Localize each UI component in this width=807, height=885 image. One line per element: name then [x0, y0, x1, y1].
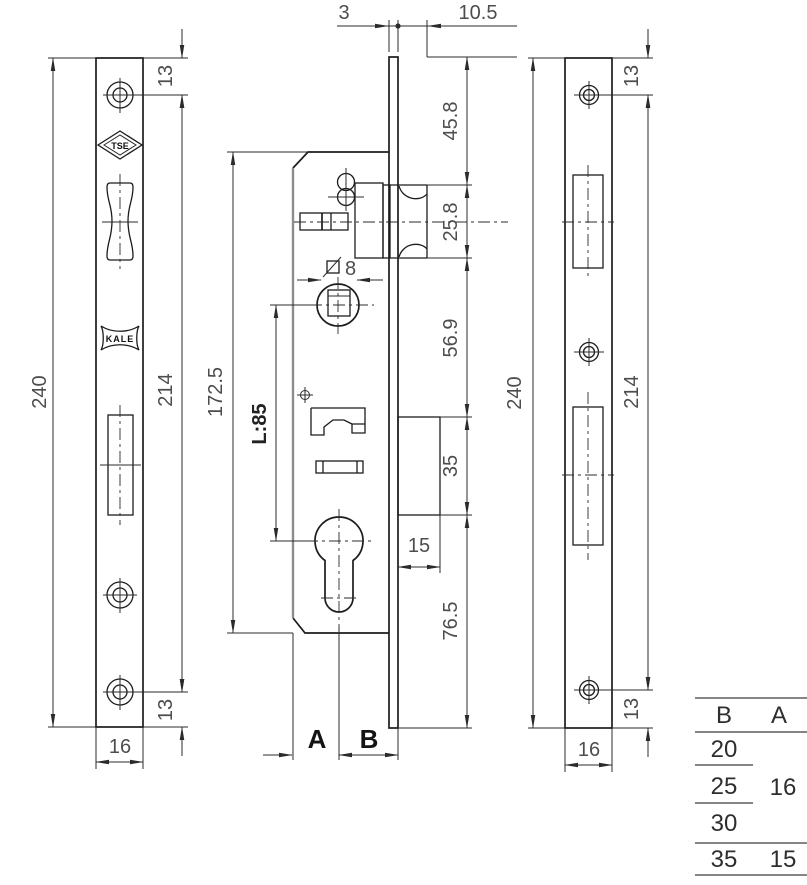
- kale-logo-text: KALE: [106, 334, 135, 344]
- left-screw-hole-bottom: [103, 675, 137, 710]
- dim-left-overall-height: 240: [29, 375, 51, 408]
- spindle-follower: 8: [297, 257, 383, 334]
- dim-right-width: 16: [578, 739, 600, 761]
- table-b-row-1: 20: [711, 736, 738, 763]
- back-plate-view: 240 13 214 13 16: [504, 29, 653, 772]
- top-dimensions: 3 10.5: [337, 2, 517, 57]
- drawing-canvas: TSE KALE 240 13 214: [0, 0, 807, 885]
- lock-technical-drawing: TSE KALE 240 13 214: [0, 0, 807, 885]
- dim-axis-distance: L:85: [249, 403, 271, 444]
- dim-chain-6: 76.5: [440, 602, 462, 641]
- faceplate-front-view: TSE KALE 240 13 214: [29, 29, 188, 769]
- latch-pin: [294, 213, 508, 230]
- kale-logo: KALE: [101, 326, 139, 350]
- label-a: A: [308, 724, 327, 754]
- dim-chain-3: 56.9: [440, 319, 462, 358]
- size-table: B A 20 25 30 35 16 15: [695, 698, 807, 875]
- left-screw-hole-middle: [103, 578, 137, 613]
- axis-distance-dimension: L:85: [249, 305, 314, 541]
- dim-right-screw-top: 13: [621, 65, 643, 87]
- left-deadbolt-cutout: [100, 405, 141, 525]
- dim-chain-5: 15: [408, 535, 430, 557]
- left-view-dimensions: 240 13 214 13 16: [29, 29, 188, 769]
- dim-faceplate-thickness: 3: [338, 2, 349, 24]
- dim-left-screw-span: 214: [155, 373, 177, 406]
- right-view-dimensions: 240 13 214 13 16: [504, 29, 653, 772]
- table-a-bottom: 15: [770, 846, 797, 873]
- dim-body-height: 172.5: [205, 367, 227, 417]
- chain-dimensions: 45.8 25.8 56.9 35 76.5 15: [398, 57, 517, 728]
- right-screw-hole-middle: [574, 338, 604, 366]
- dim-right-overall-height: 240: [504, 376, 526, 409]
- left-roller-latch-cutout: [102, 174, 138, 269]
- table-b-row-4: 35: [711, 846, 738, 873]
- table-b-row-3: 30: [711, 810, 738, 837]
- right-screw-hole-top: [574, 81, 604, 109]
- stop-cutout: [311, 408, 365, 435]
- euro-cylinder-hole: [306, 509, 372, 626]
- right-plate-outline: [565, 58, 612, 728]
- right-deadbolt-opening: [562, 392, 614, 560]
- dim-left-screw-top: 13: [155, 65, 177, 87]
- latch-bolt: [355, 183, 427, 258]
- dim-left-width: 16: [109, 736, 131, 758]
- tse-logo: TSE: [98, 131, 142, 159]
- backset-dimensions: A B: [263, 626, 398, 760]
- latch-adjuster-screw: [328, 168, 364, 211]
- strike-box: [398, 417, 440, 515]
- table-b-row-2: 25: [711, 773, 738, 800]
- tse-logo-text: TSE: [111, 141, 129, 151]
- dim-chain-4: 35: [440, 455, 462, 477]
- lock-case-outline: [293, 152, 389, 633]
- right-latch-opening: [562, 165, 614, 278]
- lock-body-section-view: 8: [205, 2, 517, 760]
- dim-spindle-square: 8: [345, 258, 356, 280]
- label-b: B: [360, 724, 379, 754]
- locating-hole: [297, 387, 313, 403]
- slot-cutout: [316, 461, 363, 473]
- right-screw-hole-bottom: [574, 676, 604, 704]
- left-screw-hole-top: [103, 78, 137, 113]
- table-header-a: A: [771, 702, 787, 729]
- dim-backplate-offset: 10.5: [459, 2, 498, 24]
- dim-chain-2: 25.8: [440, 203, 462, 242]
- dim-chain-1: 45.8: [440, 102, 462, 141]
- faceplate-strip: [389, 57, 398, 728]
- table-header-b: B: [716, 702, 732, 729]
- dim-left-screw-bottom: 13: [155, 699, 177, 721]
- dim-right-screw-bottom: 13: [621, 698, 643, 720]
- table-a-top: 16: [770, 774, 797, 801]
- dim-right-screw-span: 214: [621, 375, 643, 408]
